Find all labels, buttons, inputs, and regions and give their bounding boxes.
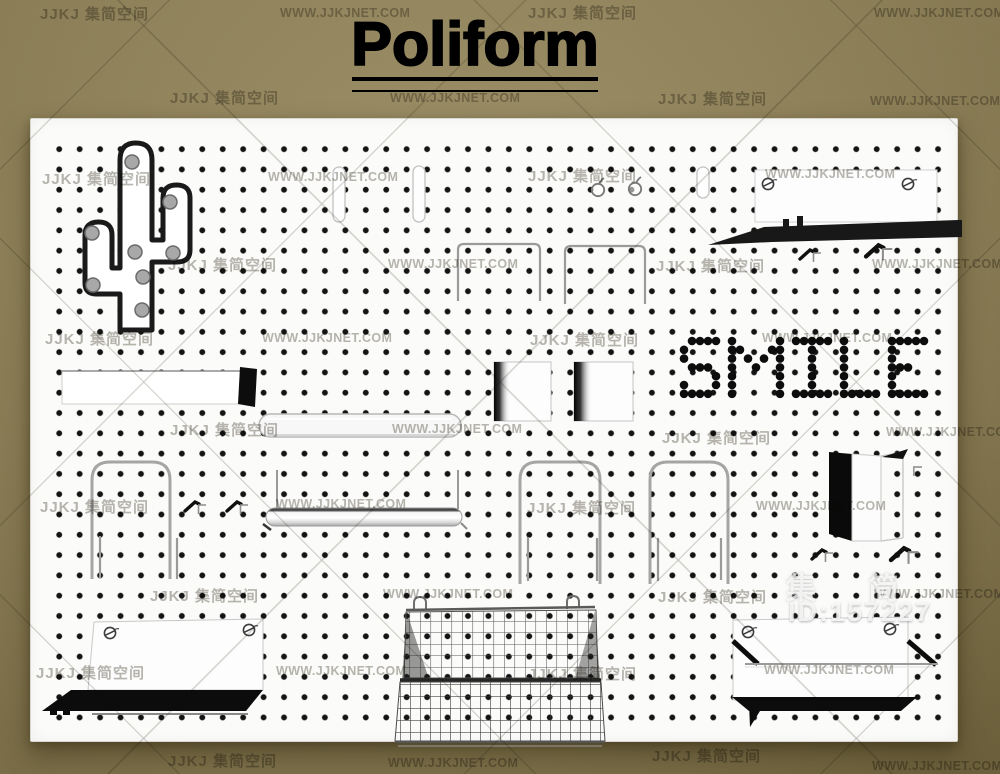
title-underline: [352, 77, 598, 92]
brand-title: Poliform: [300, 12, 650, 76]
pegboard: [30, 118, 958, 742]
pegboard-holes: [47, 137, 944, 732]
render-stage: Poliform: [0, 0, 1000, 774]
site-id-number-watermark: ID:157227: [788, 597, 932, 628]
